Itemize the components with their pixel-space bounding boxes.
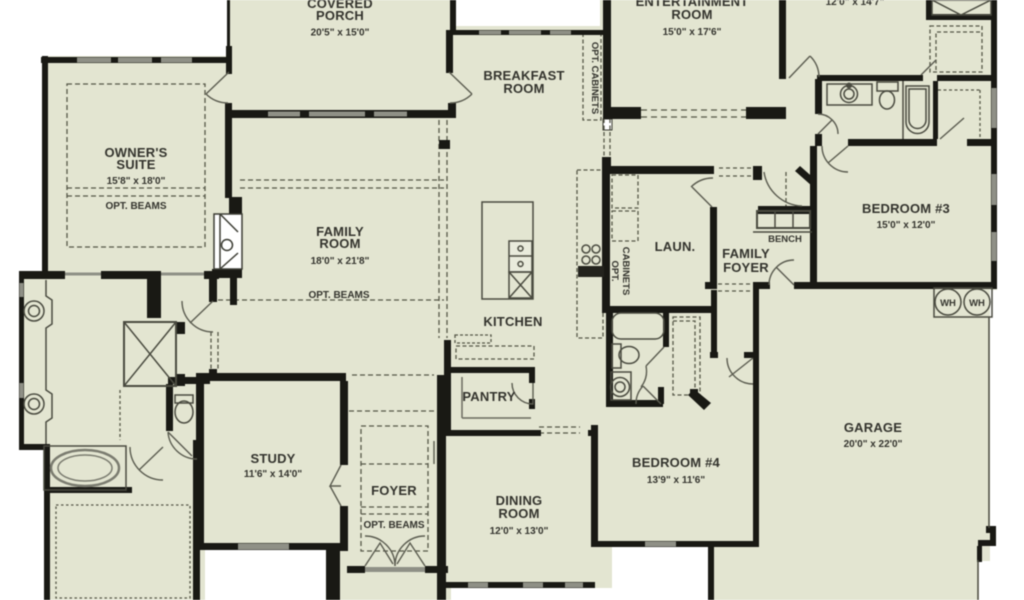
svg-text:20'5" x 15'0": 20'5" x 15'0" (311, 28, 370, 39)
svg-text:GARAGE: GARAGE (844, 420, 902, 435)
svg-text:BEDROOM #3: BEDROOM #3 (862, 201, 950, 216)
svg-text:13'9" x 11'6": 13'9" x 11'6" (647, 475, 705, 486)
svg-text:15'0" x 17'6": 15'0" x 17'6" (663, 27, 722, 38)
svg-text:ROOM: ROOM (671, 7, 712, 22)
svg-text:KITCHEN: KITCHEN (483, 314, 542, 329)
svg-text:ROOM: ROOM (319, 236, 360, 251)
svg-text:BENCH: BENCH (768, 234, 802, 245)
svg-text:OPT.: OPT. (609, 260, 620, 281)
svg-text:FOYER: FOYER (723, 260, 769, 275)
svg-text:LAUN.: LAUN. (655, 239, 696, 254)
svg-text:12'0" x 14'7": 12'0" x 14'7" (826, 0, 885, 8)
svg-text:OPT. BEAMS: OPT. BEAMS (308, 290, 369, 301)
svg-text:FOYER: FOYER (371, 483, 417, 498)
svg-text:OPT. BEAMS: OPT. BEAMS (105, 201, 166, 212)
svg-text:CABINETS: CABINETS (620, 247, 631, 296)
svg-text:18'0" x 21'8": 18'0" x 21'8" (311, 256, 370, 267)
svg-text:PANTRY: PANTRY (462, 389, 515, 404)
svg-text:STUDY: STUDY (250, 451, 295, 466)
svg-text:ROOM: ROOM (498, 506, 539, 521)
svg-text:WH: WH (940, 298, 956, 309)
svg-text:SUITE: SUITE (116, 157, 155, 172)
svg-text:PORCH: PORCH (316, 8, 364, 23)
svg-text:OPT. CABINETS: OPT. CABINETS (589, 42, 600, 114)
svg-text:OPT. BEAMS: OPT. BEAMS (363, 520, 424, 531)
svg-text:15'8" x 18'0": 15'8" x 18'0" (107, 176, 166, 187)
svg-text:ROOM: ROOM (503, 81, 544, 96)
svg-text:12'0" x 13'0": 12'0" x 13'0" (490, 526, 549, 537)
svg-text:20'0" x 22'0": 20'0" x 22'0" (844, 439, 903, 450)
svg-text:11'6" x 14'0": 11'6" x 14'0" (244, 469, 302, 480)
svg-text:BEDROOM #4: BEDROOM #4 (632, 455, 721, 470)
svg-text:FAMILY: FAMILY (722, 246, 770, 261)
svg-text:WH: WH (969, 298, 985, 309)
svg-text:15'0" x 12'0": 15'0" x 12'0" (877, 220, 936, 231)
